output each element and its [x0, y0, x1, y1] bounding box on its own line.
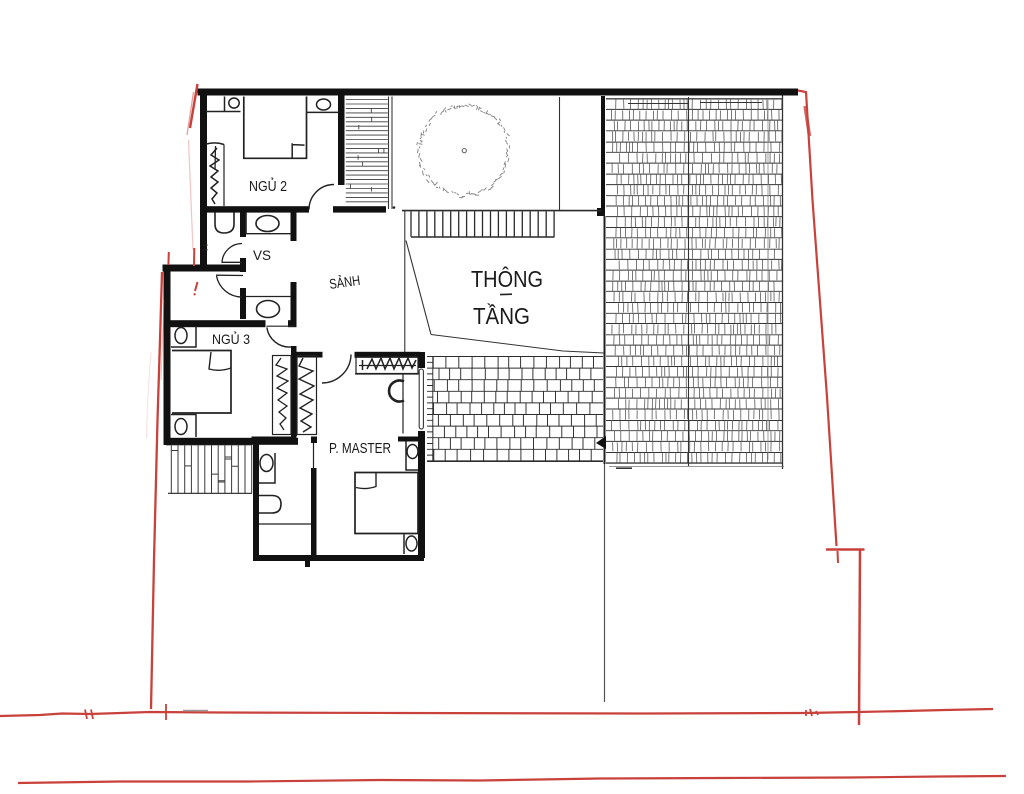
svg-text:TẦNG: TẦNG [473, 302, 530, 329]
svg-text:NGỦ 3: NGỦ 3 [212, 330, 250, 347]
svg-text:P. MASTER: P. MASTER [329, 441, 391, 457]
svg-text:VS: VS [253, 247, 271, 263]
svg-text:THÔNG: THÔNG [471, 265, 543, 292]
svg-text:NGỦ 2: NGỦ 2 [249, 177, 287, 195]
